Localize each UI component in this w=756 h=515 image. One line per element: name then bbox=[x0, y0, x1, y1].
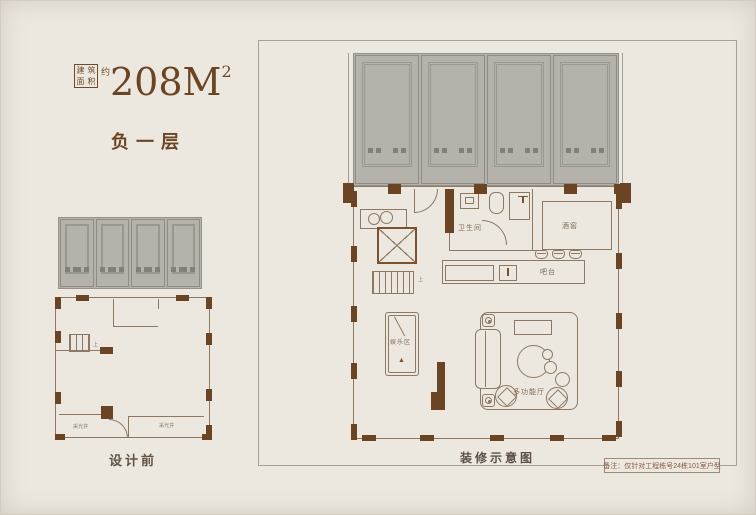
shower-head-icon bbox=[518, 196, 528, 197]
garage-bay bbox=[421, 55, 485, 184]
approx-char: 约 bbox=[101, 65, 110, 78]
bay-marks bbox=[132, 267, 164, 272]
area-value: 208M2 bbox=[110, 52, 232, 102]
wall-line bbox=[113, 326, 158, 327]
bar-counter-inner bbox=[445, 265, 494, 281]
floor-title: 负一层 bbox=[111, 128, 186, 154]
bay-marks bbox=[61, 267, 93, 272]
wall-line bbox=[59, 414, 104, 415]
before-plan-caption: 设计前 bbox=[55, 450, 211, 469]
note-box: 备注：仅针对工程栋号24栋101室户型 bbox=[604, 458, 720, 473]
wall-piers-top bbox=[76, 295, 89, 301]
sink-bowl bbox=[368, 213, 380, 225]
side-table bbox=[555, 372, 570, 387]
wall-line bbox=[128, 416, 204, 417]
wall-pier bbox=[101, 406, 113, 419]
billiard-rack-icon: ▲ bbox=[398, 357, 406, 364]
area-number: 208M bbox=[110, 60, 221, 104]
sofa-seat-line bbox=[485, 331, 486, 387]
garage-side-wall bbox=[348, 53, 349, 186]
bay-marks bbox=[422, 148, 484, 153]
bay-marks bbox=[488, 148, 550, 153]
wall-piers-right bbox=[206, 297, 212, 309]
bar-stool bbox=[569, 250, 582, 259]
toilet bbox=[489, 192, 504, 214]
area-char: 积 bbox=[88, 78, 96, 86]
sofa bbox=[475, 329, 501, 389]
wine-cellar-label: 酒窖 bbox=[562, 221, 578, 231]
wall-line bbox=[128, 416, 129, 438]
wall-line bbox=[158, 299, 159, 309]
garage-bay bbox=[131, 219, 165, 287]
garage-bay bbox=[553, 55, 617, 184]
garage-bay bbox=[167, 219, 201, 287]
before-plan: 上 采光井 采光井 bbox=[55, 217, 211, 439]
wall-piers-left bbox=[55, 297, 61, 309]
area-chars-box: 建 筑 面 积 bbox=[74, 64, 98, 88]
after-plan-box: 上 卫生间 酒窖 bbox=[258, 40, 737, 466]
stairs-small bbox=[69, 334, 90, 352]
bar-faucet-icon bbox=[507, 268, 509, 276]
garage-bay bbox=[355, 55, 419, 184]
center-table-small bbox=[544, 361, 557, 374]
area-char: 建 bbox=[77, 67, 85, 75]
stairs-large bbox=[372, 271, 414, 294]
door-leaf bbox=[414, 189, 415, 213]
bay-marks bbox=[168, 267, 200, 272]
garage-area-large bbox=[353, 53, 619, 186]
wall-piers-bottom bbox=[362, 435, 376, 441]
multi-hall-label: 多功能厅 bbox=[513, 387, 545, 397]
lightwell-label: 采光井 bbox=[73, 422, 88, 430]
tv-cabinet bbox=[514, 320, 552, 335]
speaker-icon bbox=[482, 394, 495, 407]
garage-bay bbox=[96, 219, 130, 287]
garage-side-wall bbox=[622, 53, 623, 186]
bathroom-sink-basin bbox=[465, 197, 474, 204]
bar-label: 吧台 bbox=[540, 267, 556, 277]
wall-pier bbox=[437, 362, 445, 410]
sink-bowl bbox=[380, 211, 393, 224]
house-outline-large: 上 卫生间 酒窖 bbox=[353, 186, 619, 439]
center-table-small bbox=[542, 349, 553, 360]
corner-pier bbox=[343, 183, 354, 203]
elevator-shaft bbox=[377, 227, 417, 264]
entertainment-label: 娱乐区 bbox=[390, 337, 411, 346]
wall-line bbox=[532, 189, 533, 250]
area-superscript: 2 bbox=[221, 62, 231, 81]
wall-line bbox=[113, 299, 114, 327]
garage-bay bbox=[487, 55, 551, 184]
wall-pier bbox=[100, 347, 113, 354]
bay-marks bbox=[554, 148, 616, 153]
area-char: 筑 bbox=[88, 67, 96, 75]
page-canvas: 建 筑 面 积 约 208M2 负一层 上 bbox=[0, 0, 756, 515]
bay-marks bbox=[356, 148, 418, 153]
note-text: 备注：仅针对工程栋号24栋101室户型 bbox=[603, 461, 720, 471]
wall-line bbox=[449, 233, 450, 250]
wall-piers-bottom bbox=[55, 434, 65, 440]
house-outline-small: 上 采光井 采光井 bbox=[55, 297, 210, 438]
armchair bbox=[546, 387, 568, 409]
bay-marks bbox=[97, 267, 129, 272]
wall-pier bbox=[445, 189, 454, 233]
bar-stool bbox=[552, 250, 565, 259]
speaker-icon bbox=[482, 314, 495, 327]
bar-stool bbox=[535, 250, 548, 259]
corner-pier bbox=[620, 183, 631, 203]
wall-pier bbox=[431, 392, 437, 410]
wall-piers-top bbox=[388, 184, 401, 194]
door-arc bbox=[414, 189, 438, 213]
stairs-up-label: 上 bbox=[418, 275, 423, 283]
bathroom-label: 卫生间 bbox=[458, 223, 482, 233]
wall-line bbox=[449, 250, 542, 251]
lightwell-label: 采光井 bbox=[159, 421, 174, 429]
shower-head-icon bbox=[522, 196, 524, 203]
garage-area-small bbox=[58, 217, 202, 289]
door-arc bbox=[109, 419, 128, 438]
door-arc bbox=[482, 220, 507, 245]
stairs-up-label: 上 bbox=[93, 340, 98, 348]
area-char: 面 bbox=[77, 78, 85, 86]
garage-bay bbox=[60, 219, 94, 287]
